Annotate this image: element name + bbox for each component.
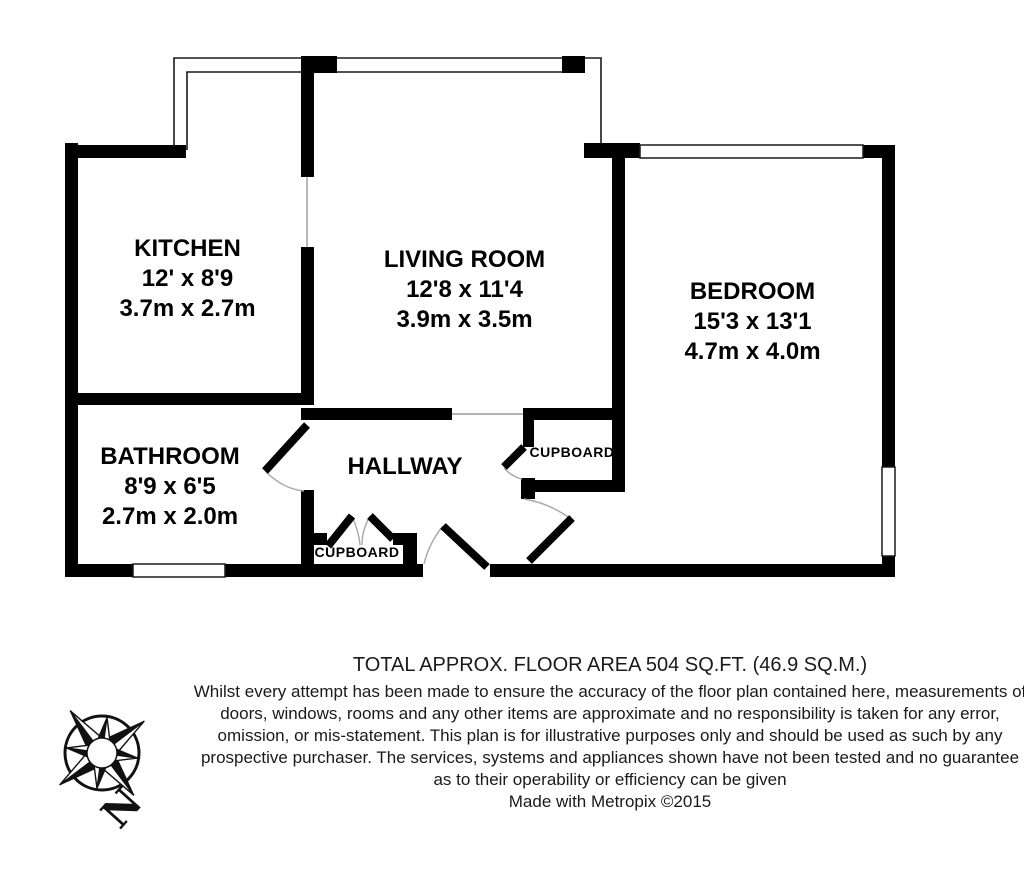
hall-cupboard-label: CUPBOARD bbox=[524, 444, 620, 460]
kitchen-imperial: 12' x 8'9 bbox=[60, 264, 315, 294]
bathroom-window bbox=[133, 564, 225, 577]
hall-cupboard-door bbox=[504, 447, 524, 467]
bedroom-top-window bbox=[640, 145, 863, 158]
hallway-label: HALLWAY bbox=[310, 452, 500, 482]
compass-rose: N bbox=[50, 695, 200, 845]
living-room-imperial: 12'8 x 11'4 bbox=[337, 275, 592, 305]
living-room-name: LIVING ROOM bbox=[337, 245, 592, 275]
entry-cupboard-door-right bbox=[370, 516, 393, 539]
living-room-metric: 3.9m x 3.5m bbox=[337, 305, 592, 335]
bedroom-label: BEDROOM 15'3 x 13'1 4.7m x 4.0m bbox=[625, 277, 880, 367]
bedroom-door bbox=[529, 518, 572, 561]
bedroom-name: BEDROOM bbox=[625, 277, 880, 307]
bedroom-side-window bbox=[882, 467, 895, 556]
entry-cupboard-label: CUPBOARD bbox=[309, 544, 405, 560]
hallway-name: HALLWAY bbox=[310, 452, 500, 482]
footer: TOTAL APPROX. FLOOR AREA 504 SQ.FT. (46.… bbox=[192, 652, 1024, 813]
kitchen-name: KITCHEN bbox=[60, 234, 315, 264]
bedroom-imperial: 15'3 x 13'1 bbox=[625, 307, 880, 337]
bathroom-imperial: 8'9 x 6'5 bbox=[40, 472, 300, 502]
entry-cupboard-door-left bbox=[328, 516, 352, 546]
metropix-credit: Made with Metropix ©2015 bbox=[192, 791, 1024, 813]
north-label: N bbox=[92, 779, 151, 838]
living-room-label: LIVING ROOM 12'8 x 11'4 3.9m x 3.5m bbox=[337, 245, 592, 335]
front-door bbox=[443, 526, 487, 567]
disclaimer-text: Whilst every attempt has been made to en… bbox=[192, 681, 1024, 791]
bathroom-label: BATHROOM 8'9 x 6'5 2.7m x 2.0m bbox=[40, 442, 300, 532]
floorplan-page: KITCHEN 12' x 8'9 3.7m x 2.7m LIVING ROO… bbox=[0, 0, 1024, 871]
bathroom-name: BATHROOM bbox=[40, 442, 300, 472]
bedroom-metric: 4.7m x 4.0m bbox=[625, 337, 880, 367]
kitchen-label: KITCHEN 12' x 8'9 3.7m x 2.7m bbox=[60, 234, 315, 324]
bathroom-metric: 2.7m x 2.0m bbox=[40, 502, 300, 532]
total-floor-area: TOTAL APPROX. FLOOR AREA 504 SQ.FT. (46.… bbox=[192, 652, 1024, 678]
compass-star bbox=[52, 703, 151, 802]
kitchen-metric: 3.7m x 2.7m bbox=[60, 294, 315, 324]
bay-window-outline bbox=[174, 58, 601, 150]
